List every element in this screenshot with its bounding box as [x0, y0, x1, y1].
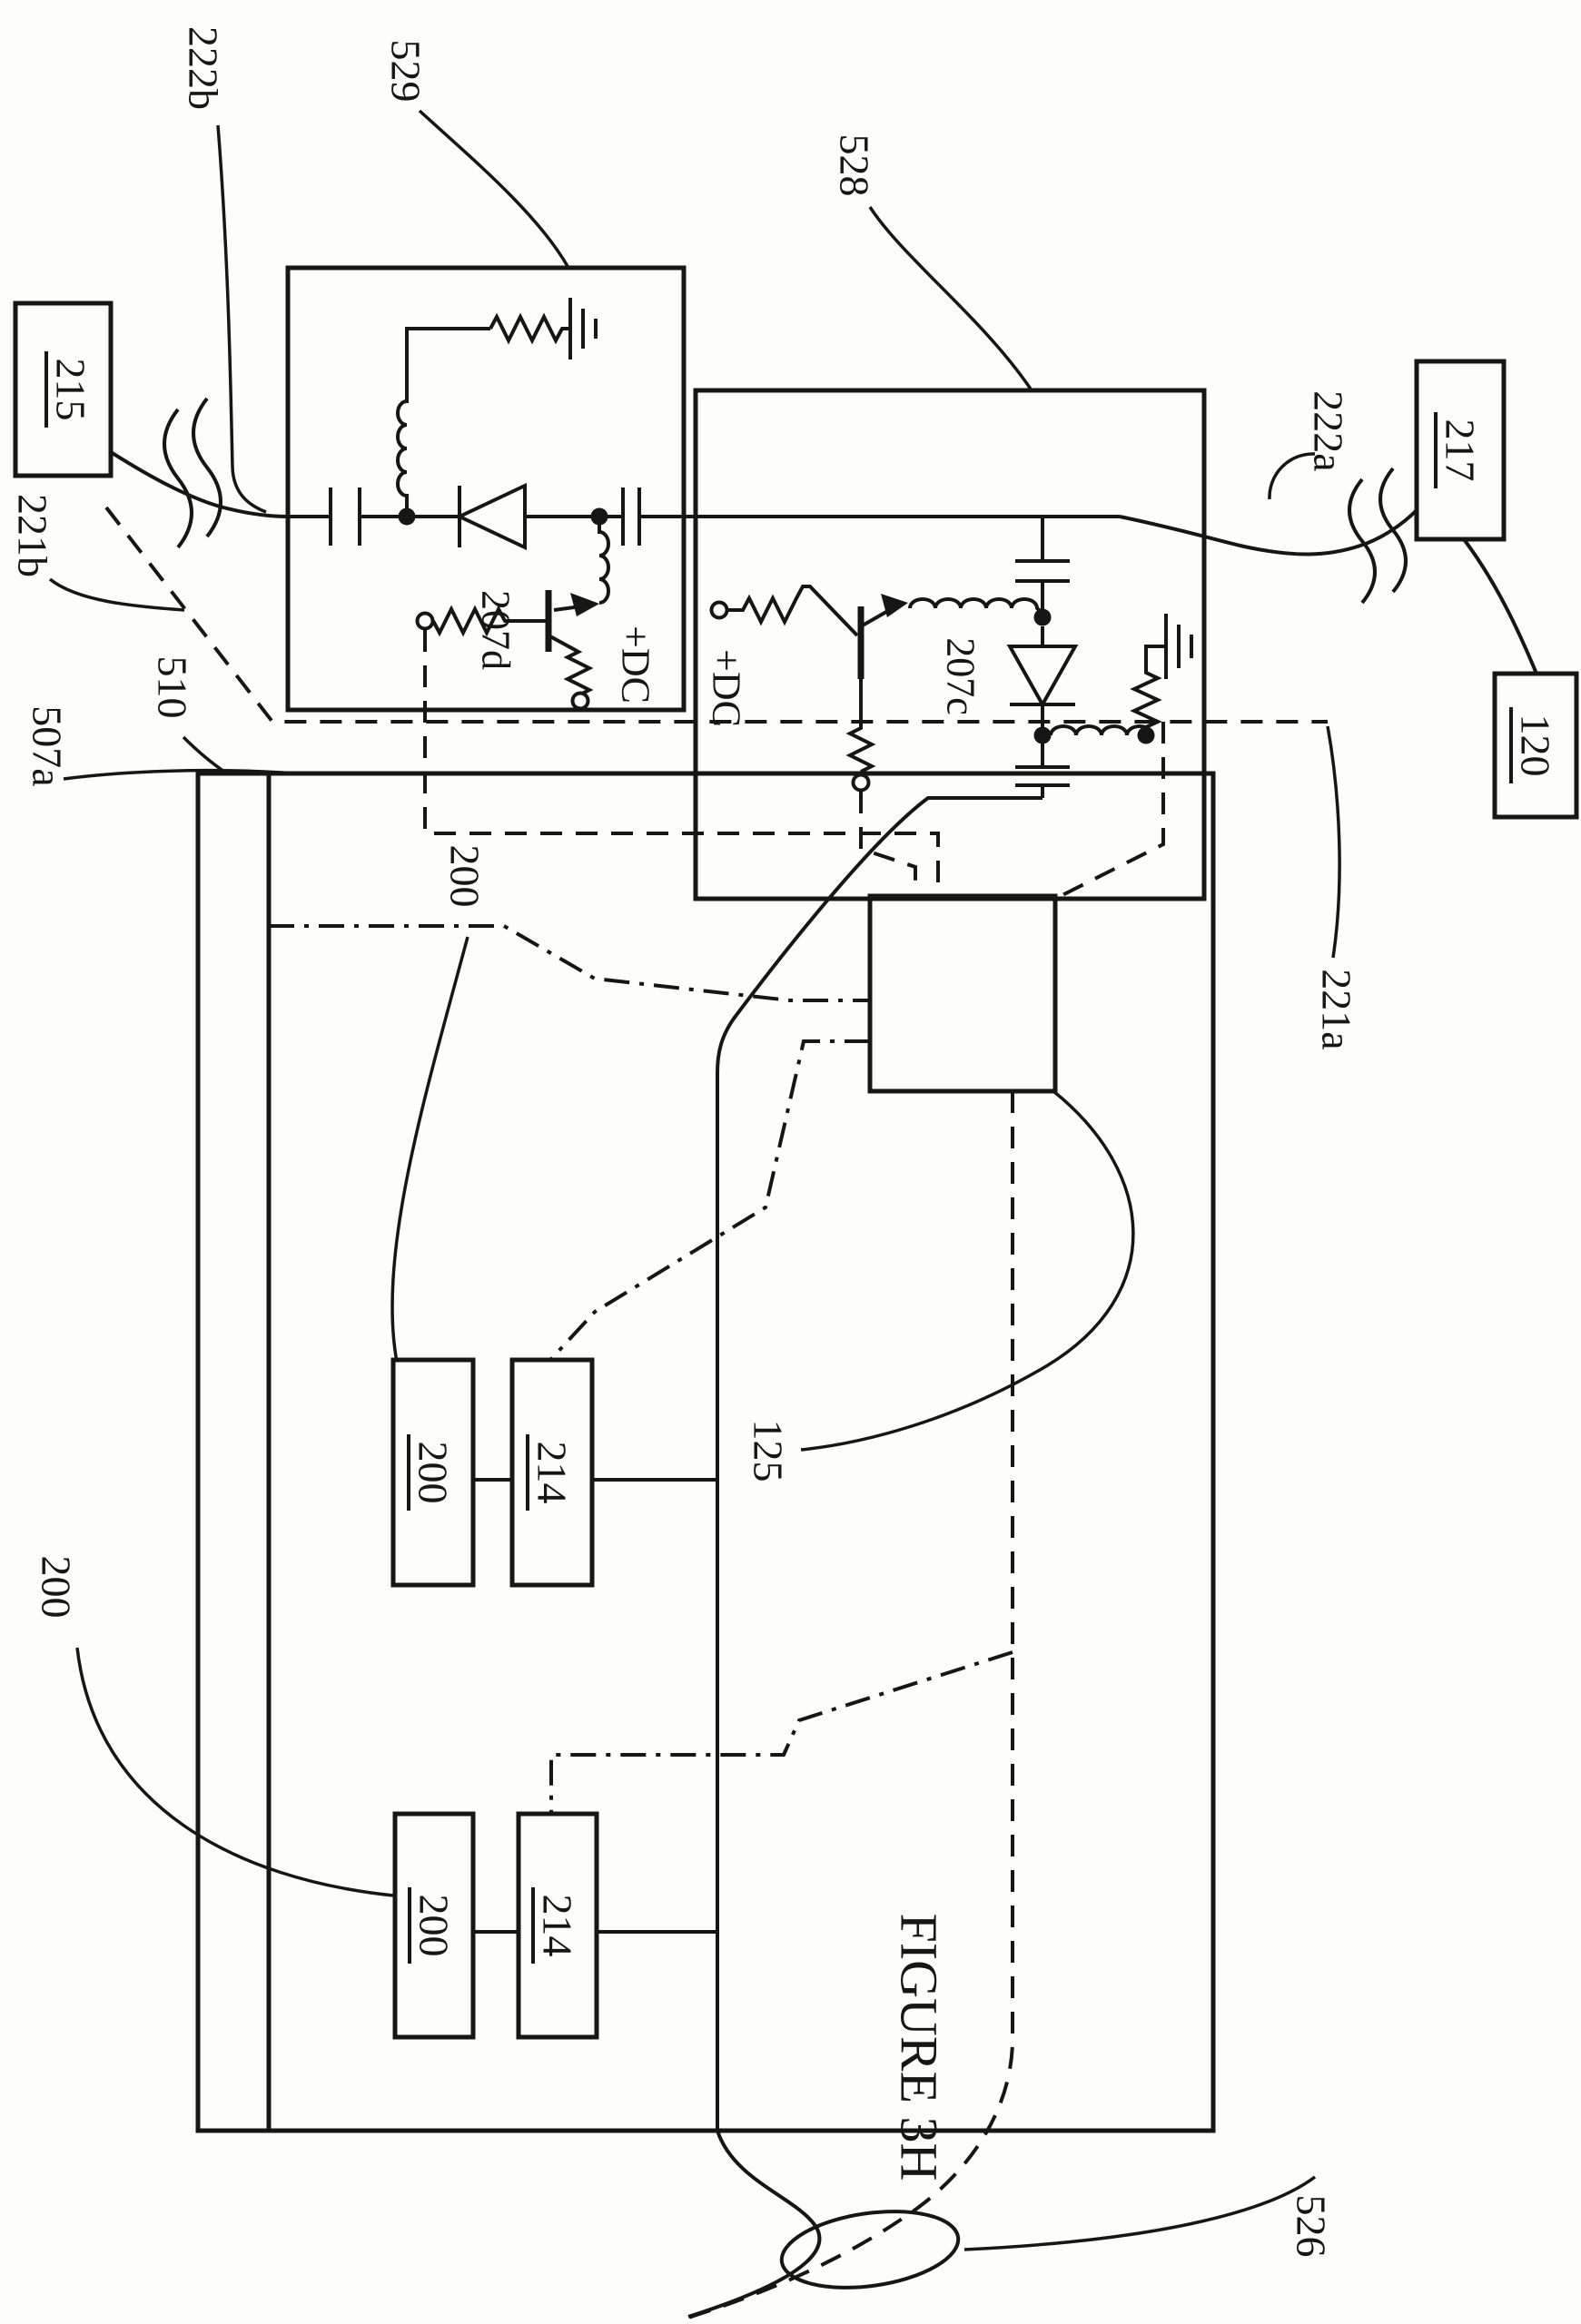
- label-214-module2: 214: [535, 1895, 581, 1957]
- leader-221b: [50, 579, 184, 610]
- leader-529: [420, 111, 568, 268]
- node-dot-icon: [1138, 727, 1155, 744]
- terminal-icon: [712, 603, 727, 618]
- figure-title: FIGURE 3H: [890, 1914, 949, 2181]
- label-214-module1: 214: [529, 1442, 576, 1504]
- ground-icon: [570, 298, 596, 359]
- dashdot-to-module2: [551, 1652, 1013, 1813]
- wire-215-to-529: [111, 452, 288, 517]
- terminal-icon: [418, 614, 433, 629]
- label-510: 510: [150, 656, 196, 719]
- label-125: 125: [746, 1420, 792, 1482]
- label-200-module2: 200: [411, 1895, 458, 1957]
- label-200-float-top: 200: [442, 845, 489, 908]
- resistor-icon: [727, 586, 857, 635]
- reference-underlines: [46, 351, 1511, 1964]
- capacitor-icon: [623, 487, 639, 546]
- inductor-icon: [599, 517, 608, 603]
- box-125: [870, 896, 1055, 1091]
- collector-resistor-icon: [850, 679, 872, 772]
- label-207d: 207d: [474, 590, 519, 670]
- wire-217-to-120: [1464, 539, 1537, 674]
- diode-icon: [459, 486, 525, 547]
- leader-125: [801, 1091, 1133, 1450]
- signal-wires: [111, 452, 1537, 2131]
- wire-528-to-217: [1120, 510, 1417, 555]
- break-squiggle-icon: [1380, 468, 1406, 592]
- leader-510: [183, 737, 227, 773]
- ground-icon: [1166, 614, 1191, 679]
- label-221a: 221a: [1314, 969, 1360, 1049]
- inductor-icon: [398, 329, 490, 517]
- label-120: 120: [1513, 714, 1559, 777]
- label-222a: 222a: [1306, 390, 1352, 471]
- line-break-symbols: [164, 399, 1406, 603]
- figure-3h-canvas: 222b 529 528 222a 215 221b 507a 510 207d…: [0, 0, 1581, 2324]
- label-217: 217: [1438, 419, 1484, 482]
- inductor-icon: [910, 599, 1042, 613]
- node-dot-icon: [1034, 727, 1052, 744]
- capacitor-icon: [331, 487, 360, 546]
- leader-200-module1: [392, 937, 468, 1362]
- label-dc-528: +DC: [705, 649, 749, 727]
- label-528: 528: [832, 134, 878, 197]
- dashed-branch-to-125: [1055, 722, 1163, 899]
- leader-200-module2: [77, 1648, 393, 1896]
- leader-222b: [218, 125, 266, 512]
- node-dot-icon: [1034, 609, 1052, 626]
- emitter-resistor-icon: [548, 635, 589, 695]
- terminal-icon: [573, 694, 588, 709]
- capacitor-icon: [1015, 743, 1070, 798]
- leader-528: [870, 207, 1032, 390]
- label-200-float-bottom: 200: [34, 1556, 80, 1619]
- leader-221a: [1328, 726, 1339, 958]
- transistor-arrow-icon: [570, 593, 599, 616]
- diode-icon: [1010, 646, 1075, 704]
- label-207c: 207c: [939, 637, 983, 715]
- label-222b: 222b: [181, 26, 227, 110]
- label-507a: 507a: [25, 705, 71, 786]
- terminal-icon: [854, 775, 869, 791]
- inductor-icon: [1051, 726, 1152, 735]
- labels: 222b 529 528 222a 215 221b 507a 510 207d…: [10, 26, 1559, 2258]
- leader-526: [964, 2177, 1315, 2250]
- capacitor-icon: [1015, 517, 1070, 609]
- label-529: 529: [383, 40, 430, 103]
- resistor-icon: [1134, 646, 1166, 727]
- probe-solid-curve: [688, 2131, 819, 2317]
- dashdot-125-to-module1: [551, 1041, 870, 1359]
- label-215: 215: [48, 359, 94, 421]
- dashdot-wall-to-125: [269, 926, 870, 1000]
- patent-figure-page: 222b 529 528 222a 215 221b 507a 510 207d…: [0, 0, 1581, 2324]
- resistor-icon: [490, 317, 570, 340]
- dashdot-lines: [269, 926, 1013, 1813]
- break-squiggle-icon: [164, 409, 192, 547]
- break-squiggle-icon: [193, 399, 221, 537]
- box-510-main: [198, 773, 1213, 2131]
- label-221b: 221b: [10, 494, 56, 577]
- label-dc-529: +DC: [614, 625, 658, 704]
- dashed-528-bias-to-125: [861, 792, 915, 894]
- label-200-module1: 200: [410, 1442, 457, 1504]
- label-526: 526: [1289, 2195, 1335, 2258]
